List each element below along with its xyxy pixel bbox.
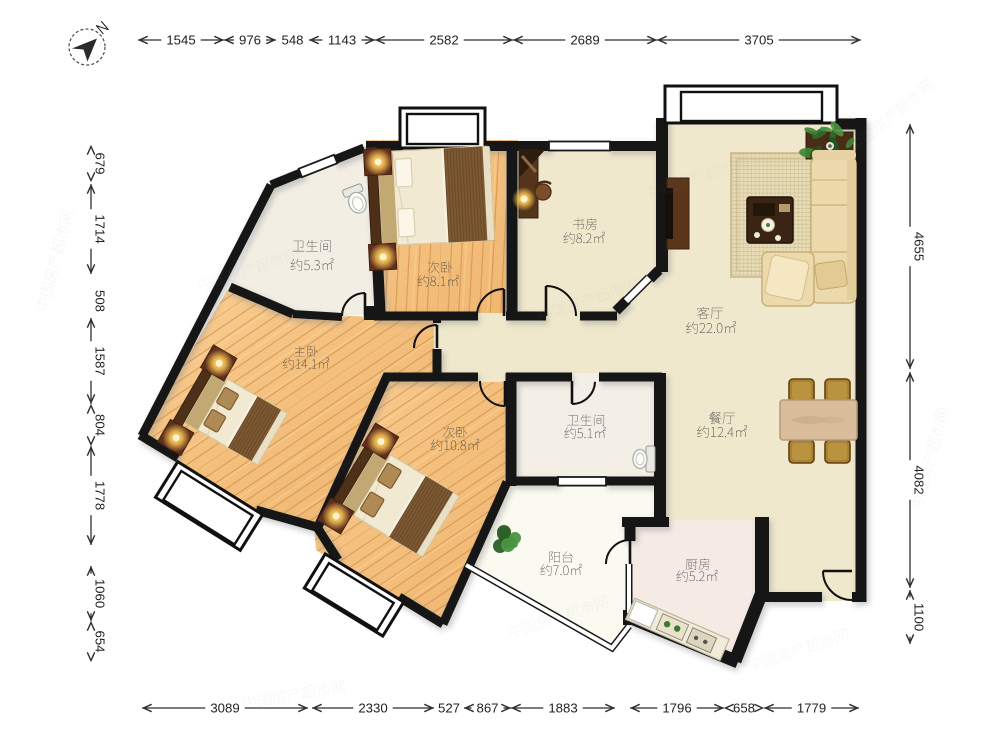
svg-text:508: 508	[93, 290, 108, 312]
svg-text:548: 548	[281, 33, 303, 48]
svg-text:2582: 2582	[429, 33, 458, 48]
svg-text:654: 654	[93, 630, 108, 652]
svg-text:4655: 4655	[912, 232, 927, 261]
svg-text:2689: 2689	[570, 33, 599, 48]
svg-text:976: 976	[239, 33, 261, 48]
svg-text:1779: 1779	[797, 701, 826, 716]
svg-text:1100: 1100	[912, 603, 927, 631]
svg-text:867: 867	[476, 701, 498, 716]
svg-text:3705: 3705	[744, 33, 773, 48]
svg-text:1545: 1545	[166, 33, 195, 48]
svg-text:1714: 1714	[93, 214, 108, 243]
svg-text:527: 527	[438, 701, 460, 716]
svg-text:1060: 1060	[93, 579, 108, 608]
svg-text:804: 804	[93, 414, 108, 436]
svg-text:2330: 2330	[358, 701, 387, 716]
svg-text:1143: 1143	[328, 33, 356, 48]
svg-text:1883: 1883	[548, 701, 577, 716]
svg-text:1796: 1796	[662, 701, 691, 716]
svg-text:658: 658	[733, 701, 755, 716]
svg-text:3089: 3089	[210, 701, 239, 716]
svg-text:1778: 1778	[93, 481, 108, 510]
svg-text:679: 679	[93, 152, 108, 174]
svg-text:1587: 1587	[93, 346, 108, 375]
